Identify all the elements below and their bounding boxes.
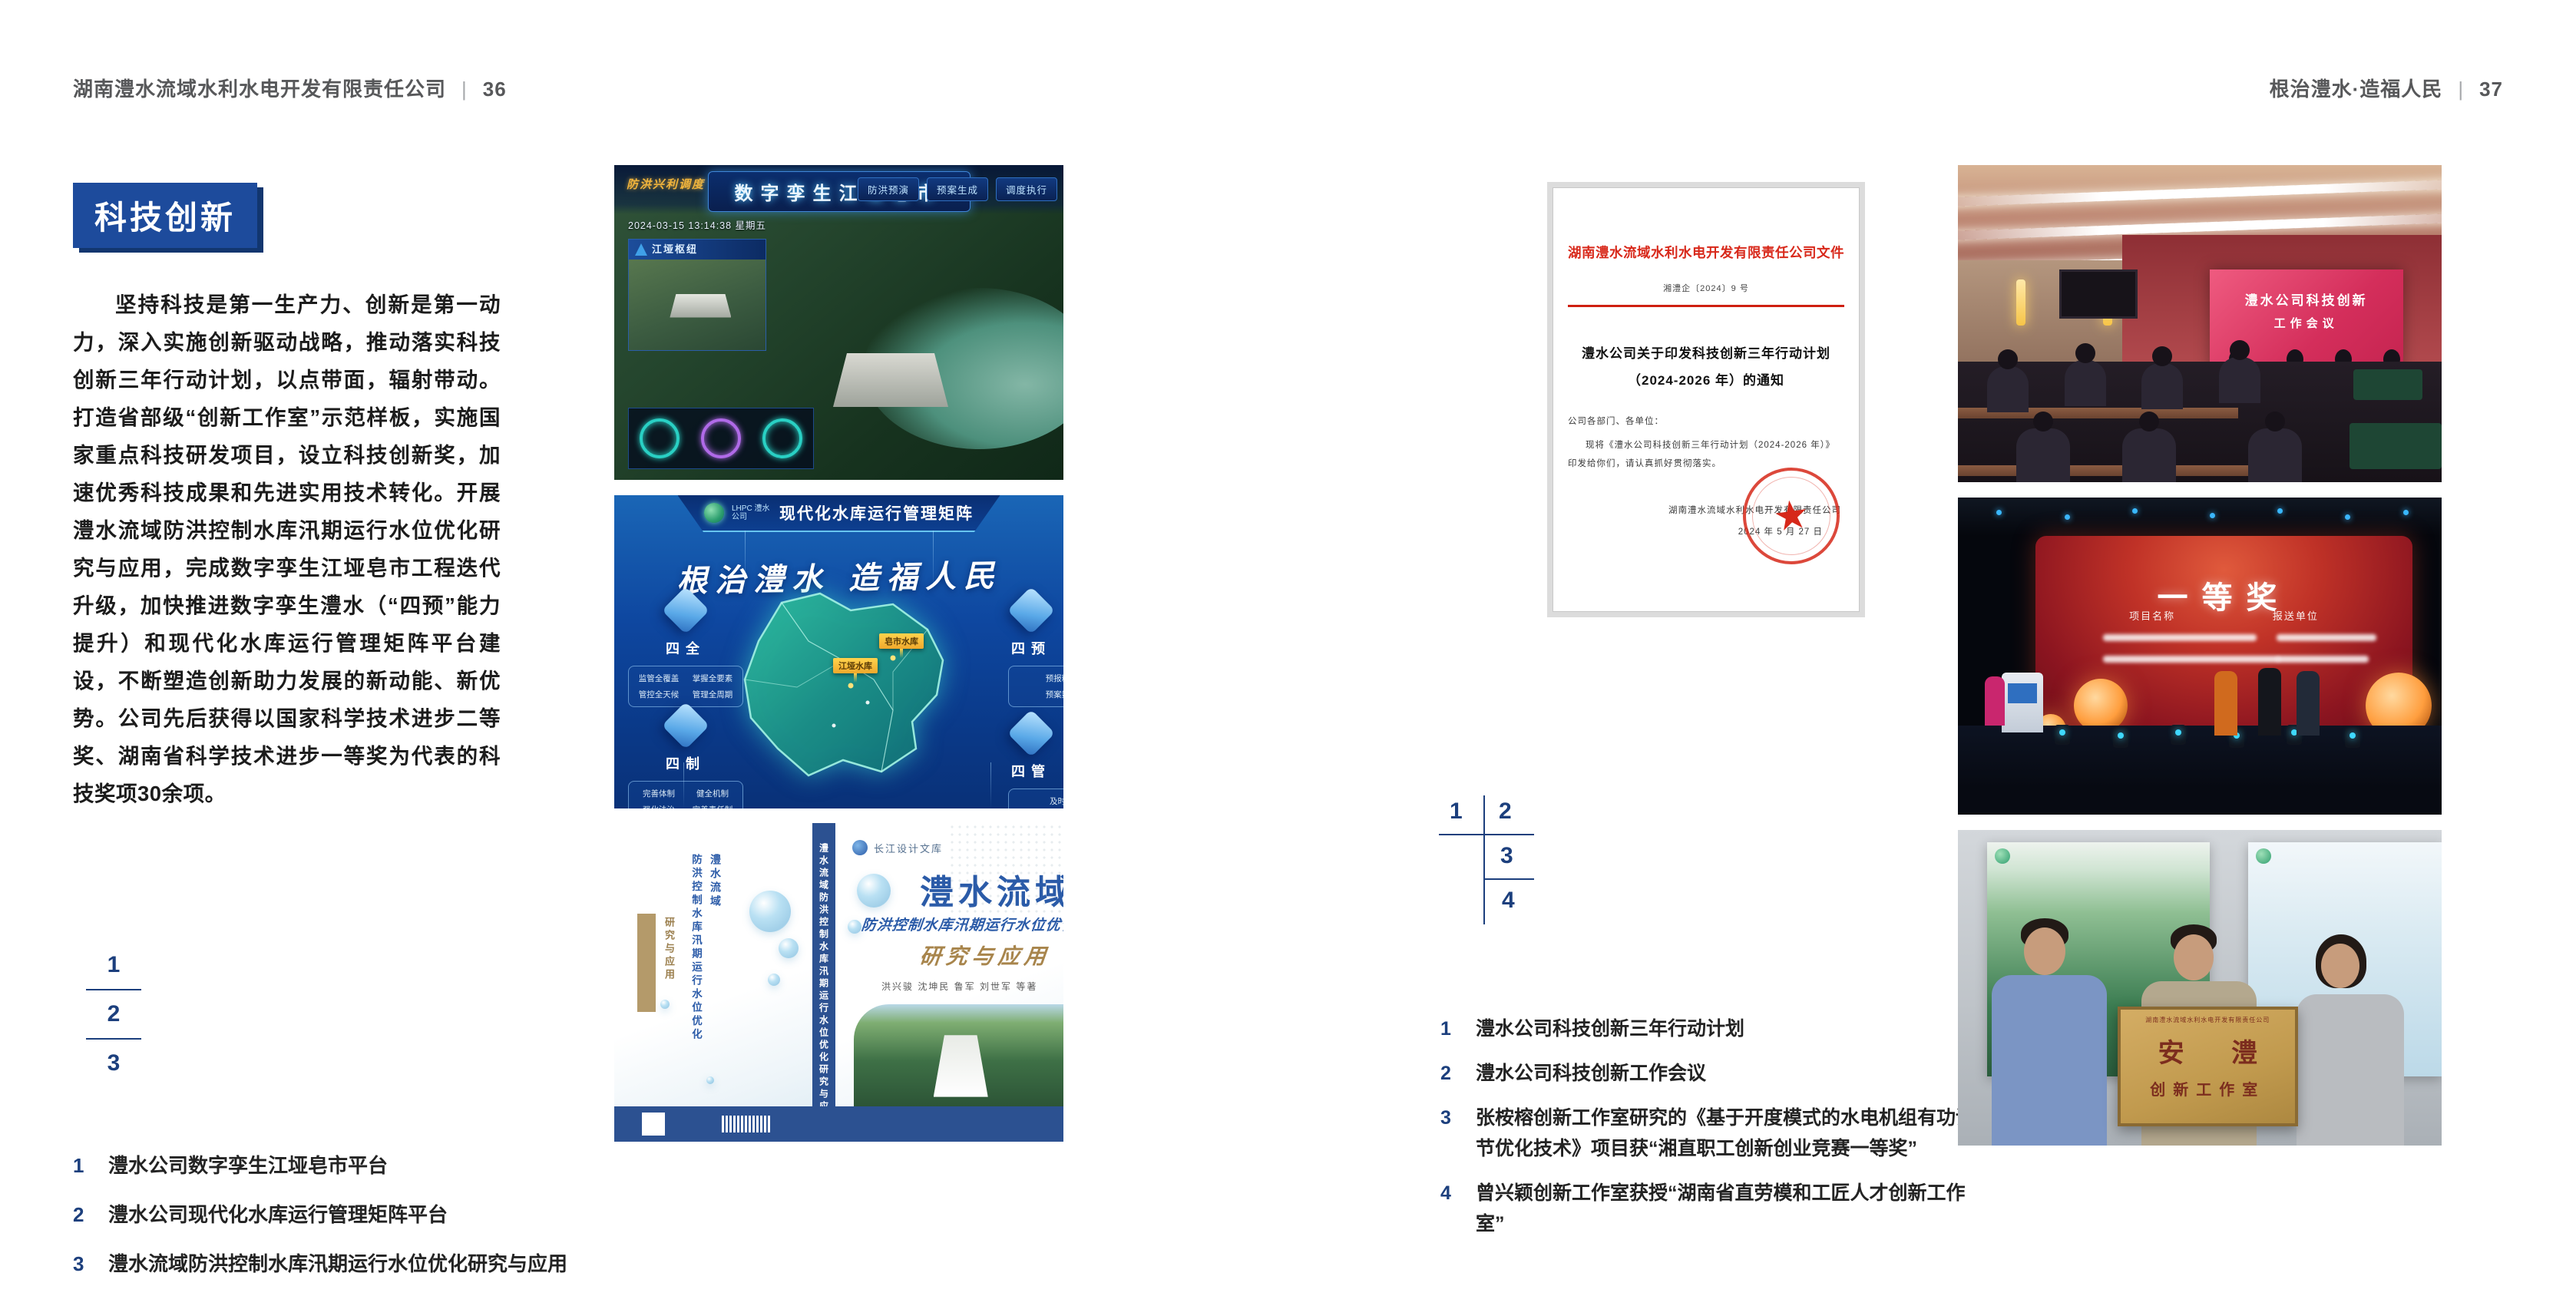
brochure-spread: 湖南澧水流域水利水电开发有限责任公司|36 根治澧水·造福人民|37 科技创新 … [0, 0, 2576, 1306]
book-title: 澧水流域 [920, 865, 1063, 914]
figure-marker: 3 [86, 1050, 141, 1076]
screen-title-line1: 澧水公司科技创新 [2210, 289, 2403, 309]
document-title-line1: 澧水公司关于印发科技创新三年行动计划 [1568, 342, 1844, 362]
hub-panel-photo [629, 260, 766, 350]
bubble-graphic [848, 920, 861, 934]
caption-list-left: 1 澧水公司数字孪生江垭皂市平台 2 澧水公司现代化水库运行管理矩阵平台 3 澧… [73, 1150, 580, 1298]
company-name: 湖南澧水流域水利水电开发有限责任公司 [73, 78, 446, 101]
panel-siguan: 四管 及时检修 强化维护 [1008, 716, 1063, 808]
figure-digital-twin-dashboard: 防洪兴利调度 实时监测 洪水预报 防洪预警 数字孪生江垭皂市 防洪预演 预案生成… [614, 165, 1063, 480]
caption-row: 3 张桉榕创新工作室研究的《基于开度模式的水电机组有功调节优化技术》项目获“湘直… [1440, 1103, 1978, 1164]
caption-number: 4 [1440, 1178, 1476, 1239]
caption-text: 澧水公司现代化水库运行管理矩阵平台 [108, 1199, 448, 1230]
figure-marker: 1 [86, 952, 141, 978]
panel-icon [1007, 709, 1055, 757]
stage-truss [1958, 498, 2442, 536]
person-torso-blue-polo [1992, 975, 2107, 1146]
matrix-header-bar: LHPC 澧水公司 现代化水库运行管理矩阵 [678, 495, 1000, 532]
award-columns: 项目名称 报送单位 [2035, 608, 2412, 623]
panel-sizhi: 四制 完善体制 健全机制 强化法治 完善责任制 [628, 709, 743, 808]
covered-table [2349, 423, 2442, 469]
presenter-silhouette-suit [2258, 668, 2281, 736]
lhpc-logo-text: LHPC 澧水公司 [732, 504, 772, 521]
series-name: 长江设计文库 [874, 841, 943, 855]
panel-item: 健全机制 [687, 788, 738, 799]
document-body: 现将《澧水公司科技创新三年行动计划（2024-2026 年）》印发给你们，请认真… [1568, 436, 1844, 473]
plaque-title: 安 澧 [2121, 1032, 2295, 1070]
back-title-vertical: 澧水流域 [708, 854, 723, 909]
caption-row: 3 澧水流域防洪控制水库汛期运行水位优化研究与应用 [73, 1248, 580, 1279]
marker-divider-line [1439, 834, 1534, 835]
audience-silhouette [2219, 357, 2260, 403]
panel-siquan: 四全 监管全覆盖 掌握全要素 管控全天候 管理全周期 [628, 593, 743, 707]
book-subtitle: 防洪控制水库汛期运行水位优化 [861, 914, 1063, 934]
dashboard-datetime: 2024-03-15 13:14:38 星期五 [628, 217, 766, 232]
panel-item: 预案数字化 [1014, 689, 1063, 700]
blurred-text-line [2103, 634, 2257, 641]
stage-light-dot [2277, 508, 2283, 514]
marker-divider-line [86, 989, 141, 990]
stage-light-dot [2345, 514, 2350, 520]
bubble-graphic [706, 1076, 714, 1084]
tab-plan-generation: 预案生成 [927, 177, 988, 201]
caption-row: 1 澧水公司科技创新三年行动计划 [1440, 1013, 1978, 1044]
award-col-unit: 报送单位 [2273, 608, 2319, 623]
panel-item: 强化法治 [633, 804, 684, 808]
section-badge: 科技创新 [73, 183, 257, 248]
stage-light-dot [2065, 514, 2070, 520]
caption-text: 澧水公司数字孪生江垭皂市平台 [108, 1150, 388, 1181]
wall-tv [2059, 269, 2138, 319]
photo-innovation-meeting: 澧水公司科技创新 工作会议 [1958, 165, 2442, 482]
audience-silhouette [2122, 428, 2176, 482]
header-divider: | [461, 78, 468, 101]
caption-row: 1 澧水公司数字孪生江垭皂市平台 [73, 1150, 580, 1181]
gauge-icon [701, 418, 741, 458]
publisher-logo-icon [852, 840, 868, 855]
header-divider: | [2458, 78, 2464, 101]
figure-matrix-platform: LHPC 澧水公司 现代化水库运行管理矩阵 根治澧水 造福人民 江垭水库 皂市水… [614, 495, 1063, 808]
audience-silhouette [2141, 363, 2183, 409]
panel-icon [662, 587, 709, 634]
figure-book-jacket: 研究与应用 防洪控制水库汛期运行水位优化 澧水流域 澧水流域防洪控制水库汛期运行… [614, 823, 1063, 1142]
caption-row: 4 曾兴颖创新工作室获授“湖南省直劳模和工匠人才创新工作室” [1440, 1178, 1978, 1239]
stage-light-dot [2403, 510, 2409, 515]
barcode [722, 1116, 771, 1132]
moving-head-light [2113, 728, 2128, 748]
stage-light-dot [2210, 513, 2215, 518]
caption-number: 3 [1440, 1103, 1476, 1164]
marker-divider-line [1483, 795, 1485, 924]
jacket-bottom-band [614, 1106, 1063, 1142]
photo-award-ceremony: 一等奖 项目名称 报送单位 [1958, 498, 2442, 815]
document-letterhead: 湖南澧水流域水利水电开发有限责任公司文件 [1568, 243, 1844, 262]
panel-label: 四管 [1008, 761, 1063, 781]
panel-items: 完善体制 健全机制 强化法治 完善责任制 [628, 781, 743, 808]
map-marker-zaoshi: 皂市水库 [879, 633, 924, 649]
caption-number: 2 [73, 1199, 108, 1230]
figure-marker: 3 [1500, 843, 1513, 869]
caption-number: 1 [1440, 1013, 1476, 1044]
winner-silhouette-navy [2297, 671, 2320, 736]
document-salutation: 公司各部门、各单位： [1568, 415, 1844, 427]
panel-label: 四预 [1008, 638, 1063, 658]
audience-silhouette [2248, 428, 2302, 482]
lhpc-logo-icon [704, 503, 724, 523]
decorative-line [990, 762, 991, 808]
decorative-line [683, 762, 684, 808]
book-front-cover: 长江设计文库 澧水流域 防洪控制水库汛期运行水位优化 研究与应用 洪兴骏 沈坤民… [835, 823, 1063, 1142]
cover-dam-photo [854, 1004, 1063, 1107]
moving-head-light [2055, 725, 2070, 745]
figure-official-document: 湖南澧水流域水利水电开发有限责任公司文件 湘澧企〔2024〕9 号 澧水公司关于… [1547, 182, 1865, 617]
winner-silhouette-orange [2214, 671, 2237, 736]
stage-light-dot [2132, 508, 2138, 514]
caption-row: 2 澧水公司现代化水库运行管理矩阵平台 [73, 1199, 580, 1230]
book-back-cover: 研究与应用 防洪控制水库汛期运行水位优化 澧水流域 [614, 823, 812, 1142]
bubble-graphic [749, 891, 791, 932]
caption-text: 张桉榕创新工作室研究的《基于开度模式的水电机组有功调节优化技术》项目获“湘直职工… [1476, 1103, 1978, 1164]
seal-star-icon: ★ [1771, 494, 1811, 538]
bubble-graphic [779, 938, 799, 958]
caption-text: 澧水公司科技创新三年行动计划 [1476, 1013, 1744, 1044]
back-tan-block [637, 914, 656, 1012]
innovation-workshop-plaque: 湖南澧水流域水利水电开发有限责任公司 安 澧 创新工作室 [2118, 1007, 2298, 1126]
moving-head-light [2345, 728, 2360, 748]
right-running-head: 根治澧水·造福人民|37 [2270, 74, 2503, 102]
figure-marker: 2 [1499, 798, 1512, 825]
panel-items: 预报精准化 预案数字化 [1008, 666, 1063, 707]
panel-item: 预报精准化 [1014, 673, 1063, 684]
lhpc-logo-icon [2256, 848, 2271, 864]
bubble-graphic [660, 1000, 670, 1009]
matrix-title: 现代化水库运行管理矩阵 [779, 501, 974, 524]
blurred-text-line [2103, 656, 2280, 663]
decorative-line [933, 531, 934, 592]
tab-dispatch-execution: 调度执行 [996, 177, 1057, 201]
panel-item: 及时检修 [1014, 795, 1063, 807]
figure-marker-list-left: 1 2 3 [86, 952, 141, 1076]
wall-lamp [2016, 279, 2025, 326]
unit-gauges-panel [628, 408, 814, 469]
basin-map-graphic [736, 587, 966, 787]
panel-item: 管理全周期 [687, 689, 738, 700]
figure-marker: 2 [86, 1001, 141, 1027]
plaque-header: 湖南澧水流域水利水电开发有限责任公司 [2121, 1016, 2295, 1024]
person-head [2321, 944, 2359, 988]
covered-table [2353, 369, 2422, 400]
glow-sphere [2074, 679, 2128, 732]
plaque-subtitle: 创新工作室 [2121, 1077, 2295, 1099]
panel-item: 监管全覆盖 [633, 673, 684, 684]
panel-label: 四制 [628, 753, 743, 773]
host-podium [2002, 673, 2043, 732]
back-subtitle-vertical: 防洪控制水库汛期运行水位优化 [688, 854, 703, 1042]
dashboard-right-tabs: 防洪预演 预案生成 调度执行 [858, 177, 1057, 201]
panel-icon [662, 702, 709, 749]
panel-item: 完善责任制 [687, 804, 738, 808]
caption-text: 澧水流域防洪控制水库汛期运行水位优化研究与应用 [108, 1248, 567, 1279]
photo-workshop-plaque: 湖南澧水流域水利水电开发有限责任公司 安 澧 创新工作室 [1958, 830, 2442, 1146]
panel-item: 掌握全要素 [687, 673, 738, 684]
slogan-text: 根治澧水·造福人民 [2270, 78, 2443, 101]
screen-title-line2: 工作会议 [2210, 315, 2403, 331]
caption-row: 2 澧水公司科技创新工作会议 [1440, 1058, 1978, 1089]
back-subtitle2-vertical: 研究与应用 [662, 917, 676, 982]
panel-item: 管控全天候 [633, 689, 684, 700]
panel-siyu: 四预 预报精准化 预案数字化 [1008, 593, 1063, 707]
book-spine: 澧水流域防洪控制水库汛期运行水位优化研究与应用 [812, 823, 835, 1142]
bubble-graphic [857, 874, 891, 908]
panel-items: 及时检修 强化维护 [1008, 789, 1063, 808]
book-subtitle2: 研究与应用 [918, 940, 1052, 970]
caption-number: 1 [73, 1150, 108, 1181]
panel-icon [1007, 587, 1055, 634]
page-number-left: 36 [483, 78, 507, 101]
caption-text: 曾兴颖创新工作室获授“湖南省直劳模和工匠人才创新工作室” [1476, 1178, 1978, 1239]
body-paragraph: 坚持科技是第一生产力、创新是第一动力，深入实施创新驱动战略，推动落实科技创新三年… [73, 286, 501, 812]
figure-marker: 1 [1450, 798, 1463, 825]
dam-graphic [833, 353, 948, 407]
left-running-head: 湖南澧水流域水利水电开发有限责任公司|36 [73, 74, 507, 102]
marker-divider-line [1483, 878, 1534, 880]
panel-label: 四全 [628, 638, 743, 658]
moving-head-light [2171, 725, 2186, 745]
page-number-right: 37 [2479, 78, 2503, 101]
audience-silhouette [2065, 360, 2106, 406]
document-number: 湘澧企〔2024〕9 号 [1568, 282, 1844, 294]
bubble-graphic [768, 974, 780, 986]
book-authors: 洪兴骏 沈坤民 鲁军 刘世军 等著 [881, 980, 1037, 993]
panel-item: 完善体制 [633, 788, 684, 799]
caption-number: 3 [73, 1248, 108, 1279]
caption-number: 2 [1440, 1058, 1476, 1089]
dashboard-corner-label: 防洪兴利调度 [627, 176, 705, 192]
audience-silhouette [1987, 366, 2029, 412]
hub-panel-title: 江垭枢纽 [629, 240, 766, 260]
person-head [2024, 927, 2065, 975]
gauge-icon [640, 418, 680, 458]
lhpc-logo-icon [1995, 848, 2010, 864]
person-head [2174, 934, 2214, 980]
decorative-line [745, 531, 746, 592]
figure-marker: 4 [1502, 888, 1515, 914]
tab-flood-rehearsal: 防洪预演 [858, 177, 919, 201]
spine-title: 澧水流域防洪控制水库汛期运行水位优化研究与应用 [818, 843, 831, 1126]
red-rule [1568, 305, 1844, 307]
panel-items: 监管全覆盖 掌握全要素 管控全天候 管理全周期 [628, 666, 743, 707]
gauge-icon [762, 418, 802, 458]
map-marker-jiangya: 江垭水库 [833, 658, 878, 673]
caption-text: 澧水公司科技创新工作会议 [1476, 1058, 1706, 1089]
award-col-project: 项目名称 [2129, 608, 2175, 623]
person-torso-gray [2297, 994, 2404, 1146]
caption-list-right: 1 澧水公司科技创新三年行动计划 2 澧水公司科技创新工作会议 3 张桉榕创新工… [1440, 1013, 1978, 1253]
spillway-graphic [934, 1035, 988, 1096]
stage-floor [1958, 726, 2442, 815]
series-logo-row: 长江设计文库 [852, 840, 943, 855]
hub-panel: 江垭枢纽 [628, 239, 766, 351]
document-title-line2: （2024-2026 年）的通知 [1568, 369, 1844, 388]
blurred-text-line [2277, 656, 2369, 663]
qr-code [642, 1113, 665, 1136]
audience-silhouette [2016, 428, 2070, 482]
blurred-text-line [2277, 634, 2376, 641]
host-silhouette [1985, 676, 2005, 726]
marker-divider-line [86, 1038, 141, 1040]
